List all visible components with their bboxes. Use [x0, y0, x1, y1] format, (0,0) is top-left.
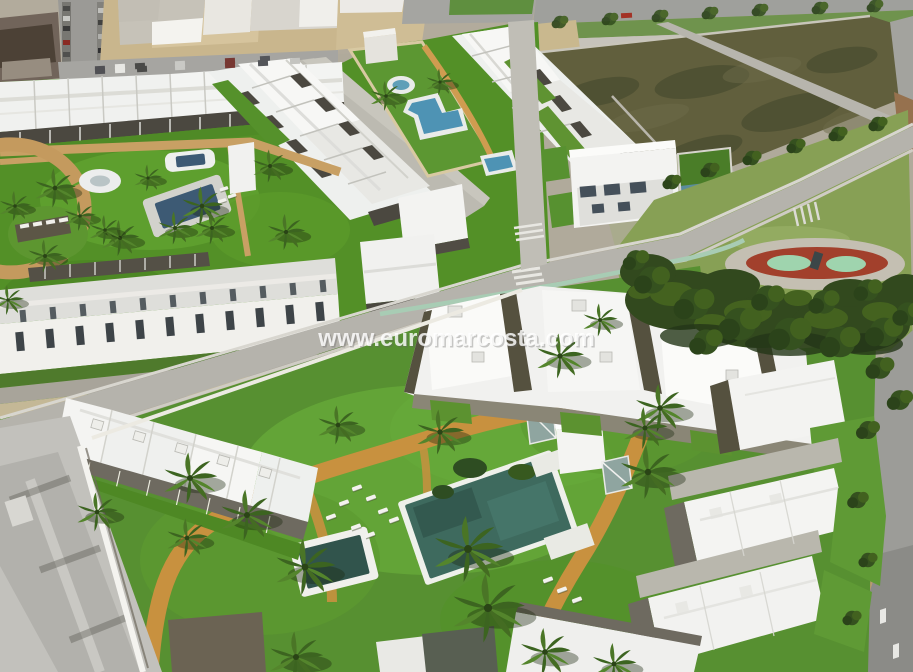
- svg-text:www.euromarcosta.com: www.euromarcosta.com: [317, 325, 595, 352]
